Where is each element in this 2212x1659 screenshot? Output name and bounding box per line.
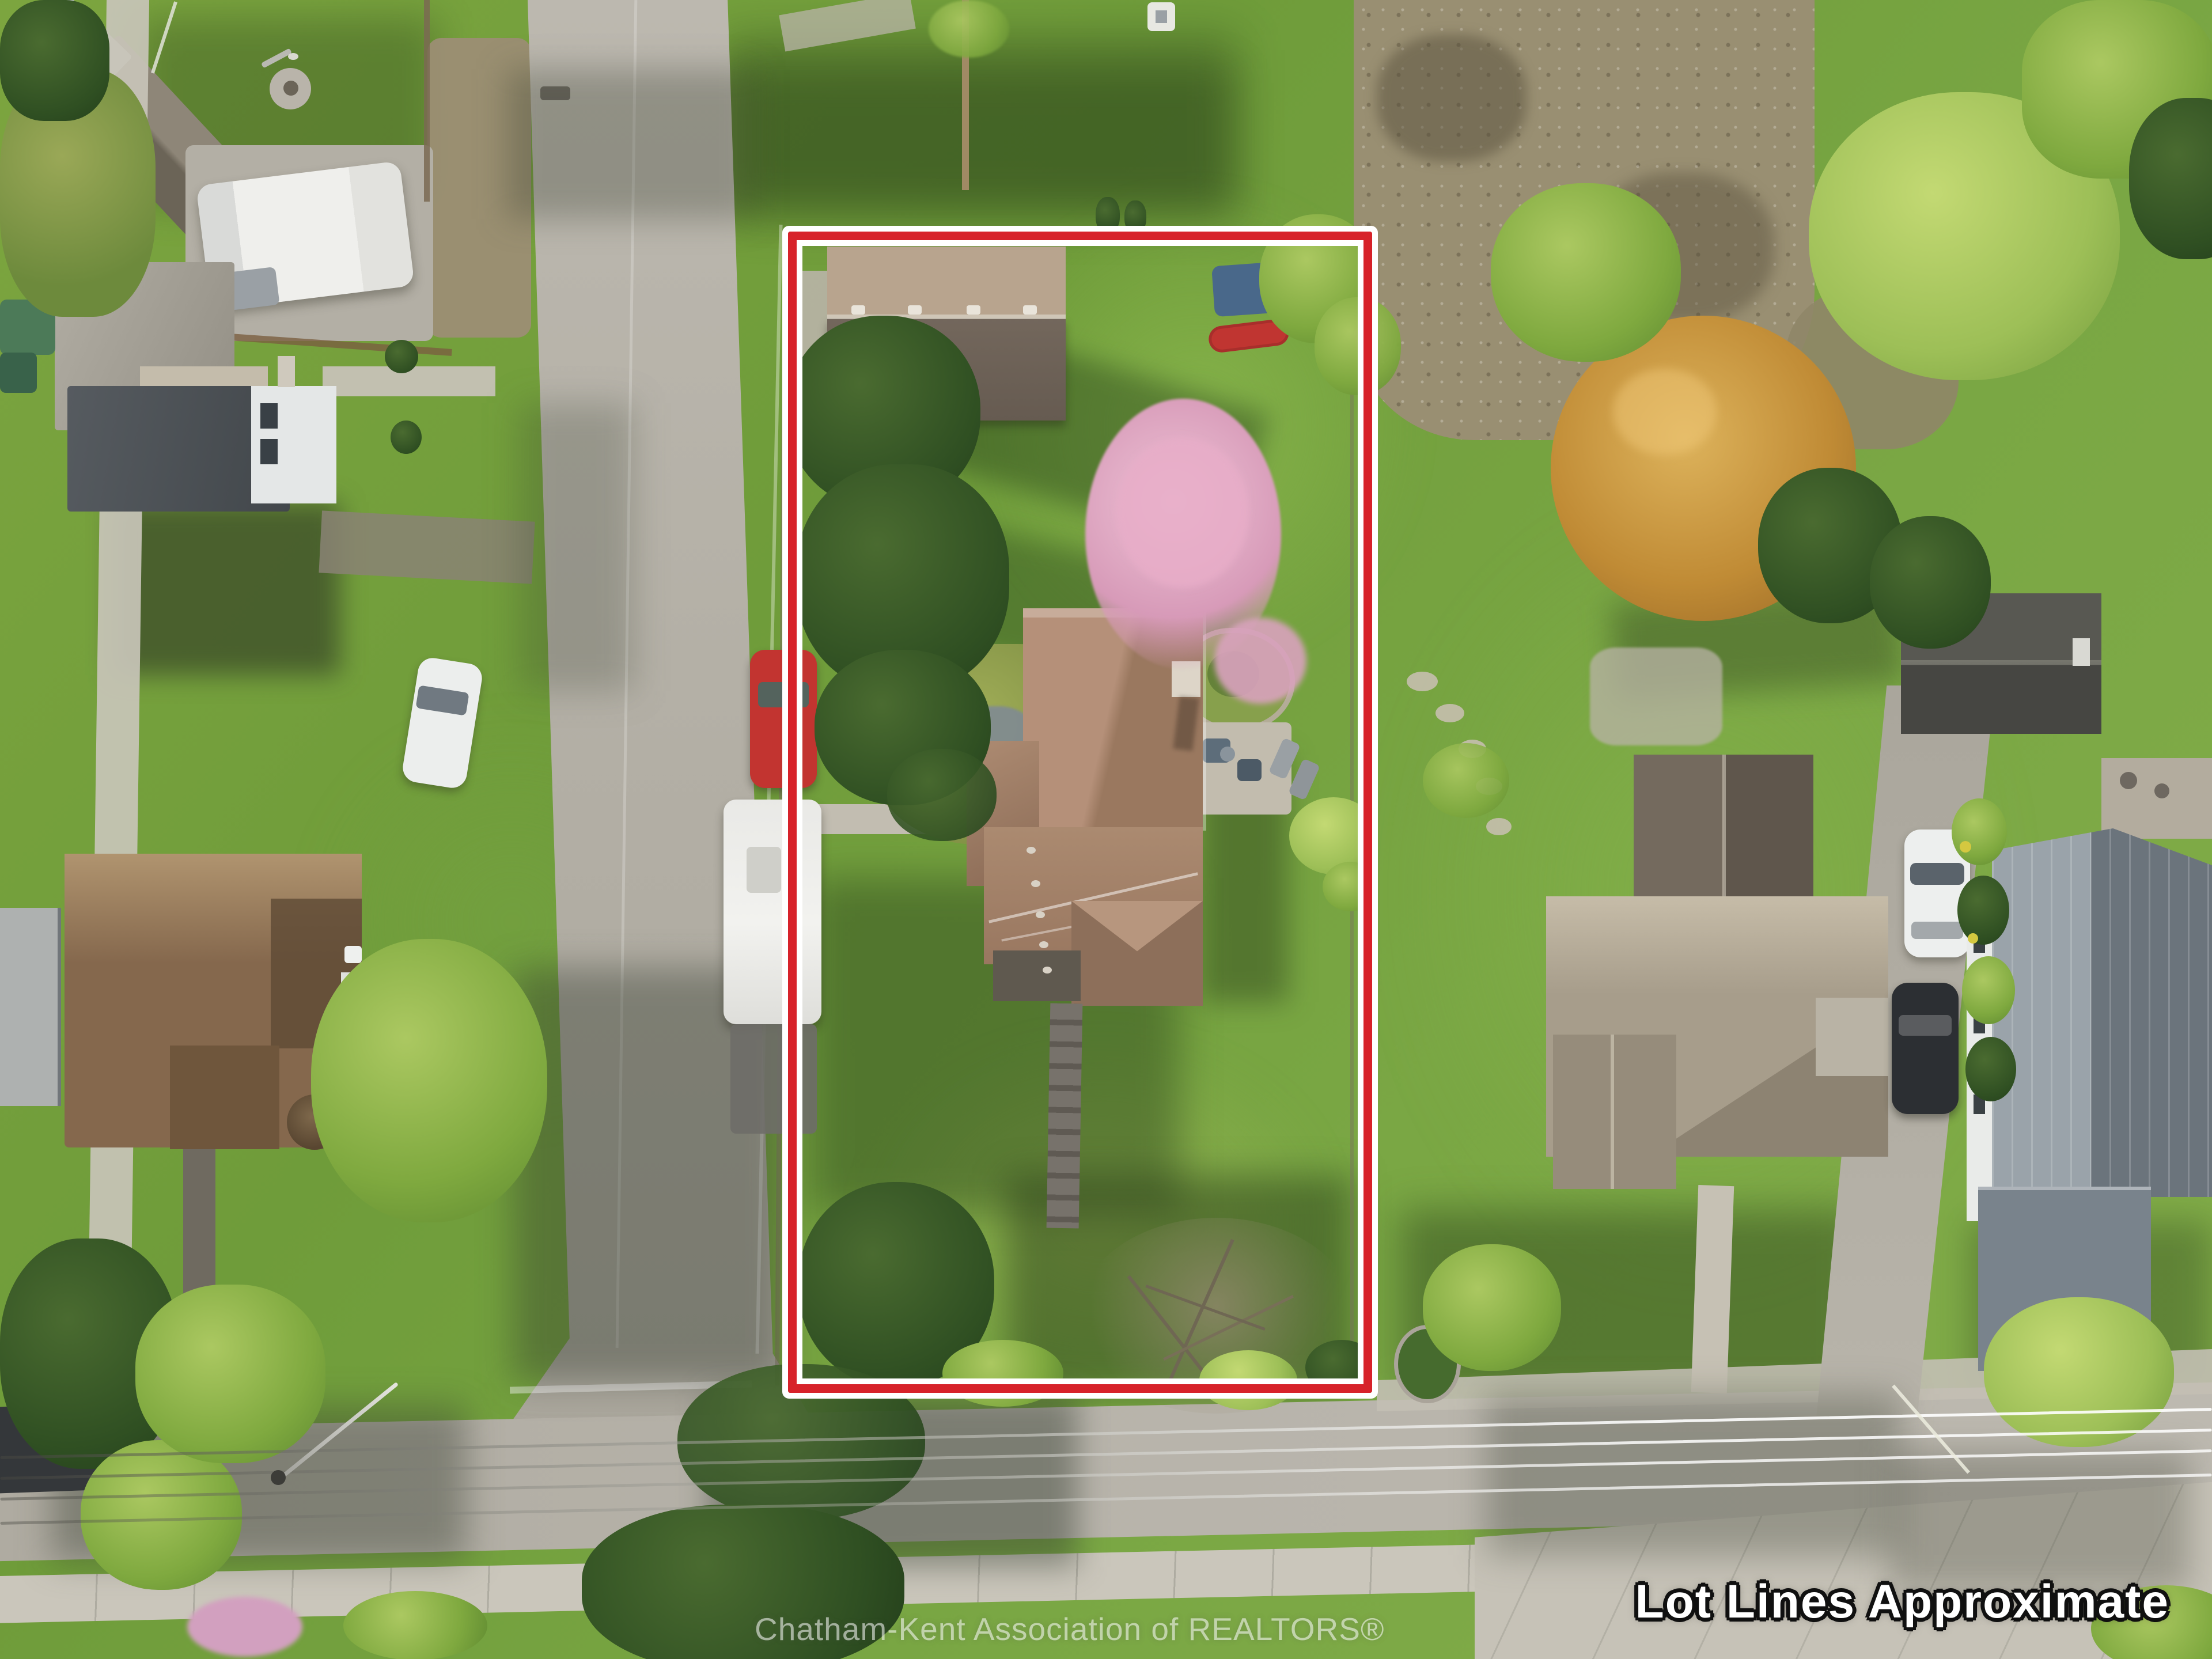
garden-sign-panel <box>1156 10 1167 23</box>
tree-canopy <box>929 0 1009 58</box>
hip-roof-highlight <box>1546 896 1888 994</box>
walkway <box>1691 1185 1734 1393</box>
car-windshield <box>1910 863 1964 885</box>
driveway <box>319 510 535 584</box>
tree-canopy <box>0 0 109 121</box>
deck-furniture <box>2120 772 2137 789</box>
neighbour-front-gable <box>1553 1035 1676 1189</box>
lawn-shadow <box>737 69 1233 207</box>
hedge <box>1957 876 2009 945</box>
stepping-stone <box>1407 672 1438 691</box>
tree-shadow-on-road <box>1889 1452 2189 1590</box>
shrub <box>391 421 422 454</box>
columnar-conifer <box>1096 197 1120 234</box>
backyard-patio <box>1590 647 1722 745</box>
window <box>260 403 278 429</box>
roof-ridge <box>1611 1035 1614 1189</box>
hedge <box>1962 956 2015 1024</box>
window <box>260 439 278 464</box>
autumn-tree-highlight <box>1613 369 1717 455</box>
green-tarp <box>0 353 37 393</box>
tree-canopy <box>1491 183 1681 362</box>
stepping-stone <box>1435 704 1464 722</box>
car-rear-window <box>1911 922 1963 939</box>
tree-shadow-on-road <box>507 69 755 219</box>
rv-roof-vent <box>747 847 781 893</box>
shed-ridge <box>1901 660 2101 665</box>
tree-canopy <box>311 939 547 1222</box>
shrub <box>1423 743 1509 818</box>
car-windshield <box>1899 1015 1952 1036</box>
black-car-driveway <box>1892 983 1959 1114</box>
pole-base <box>271 1470 286 1485</box>
shrub <box>1423 1244 1561 1371</box>
fire-pit <box>283 81 298 96</box>
tree-canopy <box>135 1285 325 1463</box>
patio-deck <box>2101 758 2212 839</box>
watermark-text: Chatham-Kent Association of REALTORS® <box>755 1611 1384 1647</box>
tan-house-front-gable <box>170 1046 279 1149</box>
metal-roof-house <box>1992 828 2212 1197</box>
disclaimer-text: Lot Lines Approximate <box>1635 1575 2169 1629</box>
bright-bush <box>1984 1297 2174 1447</box>
shrub <box>385 340 418 373</box>
yellow-flowers <box>1968 933 1978 944</box>
yellow-flowers <box>1960 841 1971 853</box>
columnar-conifer <box>1124 200 1146 234</box>
aerial-photo: Lot Lines Approximate Chatham-Kent Assoc… <box>0 0 2212 1659</box>
shrub <box>343 1591 487 1659</box>
side-deck <box>1816 998 1888 1076</box>
deck-furniture <box>2154 783 2169 798</box>
stepping-stone <box>1486 818 1512 835</box>
lot-boundary-overlay <box>788 232 1372 1393</box>
pink-flowering-bush <box>187 1597 302 1657</box>
ac-unit <box>344 946 362 963</box>
shed-door <box>2073 638 2090 666</box>
fence <box>424 0 430 202</box>
street-light-head <box>288 53 298 60</box>
tree-shadow <box>114 502 340 675</box>
garage-roof-west <box>0 908 61 1106</box>
tree-shadow-on-road <box>518 403 634 691</box>
chimney <box>278 356 295 387</box>
evergreen-tree <box>1870 516 1991 649</box>
hedge <box>1965 1037 2016 1101</box>
scrub-shadow <box>1377 35 1527 161</box>
hedge <box>1952 798 2007 865</box>
